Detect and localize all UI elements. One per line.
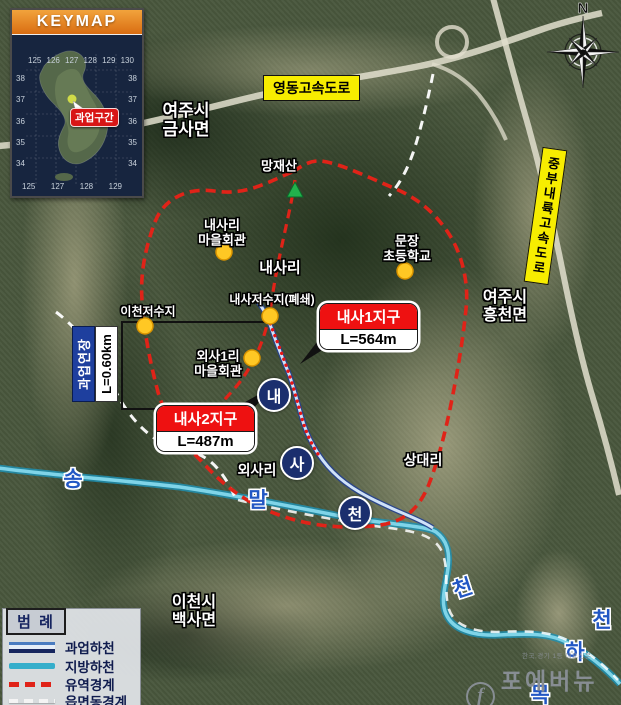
legend-label: 지방하천 xyxy=(65,656,115,676)
project-river-symbol xyxy=(9,642,55,653)
place-line: 마을회관 xyxy=(198,233,246,248)
place-label-yeoju-heungcheon: 여주시 흥천면 xyxy=(483,289,527,325)
munjang-school-marker xyxy=(397,263,413,279)
place-line: 외사1리 xyxy=(194,349,242,364)
keymap-grid-number: 128 xyxy=(80,182,93,191)
place-line: 금사면 xyxy=(163,120,210,139)
district2-name: 내사2지구 xyxy=(157,406,254,432)
place-line: 내사리 xyxy=(198,218,246,233)
keymap-project-section-label: 과업구간 xyxy=(70,108,119,127)
keymap-grid-number: 37 xyxy=(16,95,25,104)
keymap-lat-right: 3837363534 xyxy=(128,74,137,168)
legend-item-project-river: 과업하천 xyxy=(9,640,136,654)
compass-north-label: N xyxy=(578,0,589,17)
place-line: 흥천면 xyxy=(483,307,527,325)
legend-item-watershed-boundary: 유역경계 xyxy=(9,677,136,691)
keymap-map: 125126127128129130 3837363534 3837363534… xyxy=(14,36,140,194)
legend-label: 과업하천 xyxy=(65,637,115,657)
legend-panel: 범 례 과업하천 지방하천 유역경계 읍면동경계 xyxy=(2,608,141,705)
keymap-title: KEYMAP xyxy=(12,10,142,35)
legend-label: 읍면동경계 xyxy=(65,691,127,705)
keymap-panel: KEYMAP 125126127128129130 3837363534 xyxy=(10,8,144,198)
extent-label: 과업연장 xyxy=(72,326,95,402)
place-label-naesa-reservoir: 내사저수지(폐쇄) xyxy=(229,293,314,306)
watermark-name: 포에버뉴스 xyxy=(501,662,621,705)
keymap-grid-number: 34 xyxy=(16,159,25,168)
district2-length: L=487m xyxy=(157,432,254,451)
river-char-cheon-east: 천 xyxy=(592,609,611,633)
keymap-grid-number: 35 xyxy=(16,138,25,147)
keymap-project-dot xyxy=(68,95,77,104)
place-line: 여주시 xyxy=(483,289,527,307)
keymap-grid-number: 127 xyxy=(65,56,78,65)
place-label-icheon-reservoir: 이천저수지 xyxy=(120,305,175,318)
mountain-peak-triangle xyxy=(287,182,303,197)
keymap-grid-number: 130 xyxy=(121,56,134,65)
jeju-island-shape xyxy=(55,173,73,181)
keymap-lat-left: 3837363534 xyxy=(16,74,25,168)
naesa-reservoir-marker xyxy=(262,308,278,324)
yeongdong-expressway-label: 영동고속도로 xyxy=(263,75,360,101)
place-label-mangjaesan: 망재산 xyxy=(261,160,297,175)
keymap-grid-number: 37 xyxy=(128,95,137,104)
place-line: 이천시 xyxy=(172,594,216,612)
place-line: 여주시 xyxy=(163,101,210,120)
place-line: 마을회관 xyxy=(194,364,242,379)
legend-title: 범 례 xyxy=(6,608,66,635)
place-label-naesari: 내사리 xyxy=(259,261,300,278)
keymap-grid-number: 36 xyxy=(128,117,137,126)
township-boundary-line-north xyxy=(389,74,433,196)
keymap-grid-number: 128 xyxy=(84,56,97,65)
keymap-grid-number: 38 xyxy=(16,74,25,83)
keymap-grid-number: 125 xyxy=(22,182,35,191)
district1-name: 내사1지구 xyxy=(320,304,417,330)
place-label-munjang-school: 문장 초등학교 xyxy=(383,234,431,263)
place-label-icheon-baeksa: 이천시 백사면 xyxy=(172,594,216,630)
place-label-oesa1ri-hall: 외사1리 마을회관 xyxy=(194,349,242,378)
keymap-grid-number: 38 xyxy=(128,74,137,83)
keymap-grid-number: 129 xyxy=(102,56,115,65)
keymap-grid-number: 36 xyxy=(16,117,25,126)
local-river-symbol xyxy=(9,663,55,669)
keymap-grid-number: 129 xyxy=(109,182,122,191)
watershed-boundary-symbol xyxy=(9,682,55,687)
keymap-lon-top: 125126127128129130 xyxy=(28,56,134,65)
river-circle-cheon: 천 xyxy=(338,496,372,530)
keymap-grid-number: 35 xyxy=(128,138,137,147)
interchange-loop xyxy=(437,27,467,57)
satellite-map: N 영동고속도로 중부내륙고속도로 여주시 금사면 망재산 내사리 마을회관 내… xyxy=(0,0,621,705)
district1-callout: 내사1지구 L=564m xyxy=(319,303,418,350)
keymap-lon-bottom: 125127128129 xyxy=(22,182,122,191)
jungbu-naeryuk-expressway-road xyxy=(493,0,619,495)
keymap-grid-number: 125 xyxy=(28,56,41,65)
place-label-sangdaeri: 상대리 xyxy=(404,453,443,469)
river-circle-nae: 내 xyxy=(257,378,291,412)
place-label-naesari-hall: 내사리 마을회관 xyxy=(198,218,246,247)
extent-length: L=0.60km xyxy=(95,326,118,402)
place-label-oesari: 외사리 xyxy=(238,463,277,479)
legend-item-township-boundary: 읍면동경계 xyxy=(9,694,136,705)
watermark-tagline: 한국,경기 1등 대표신문 xyxy=(522,650,621,660)
place-line: 백사면 xyxy=(172,612,216,630)
river-char-mal: 말 xyxy=(248,489,267,513)
district1-length: L=564m xyxy=(320,330,417,349)
keymap-grid-number: 34 xyxy=(128,159,137,168)
place-line: 문장 xyxy=(383,234,431,249)
river-char-song: 송 xyxy=(63,468,82,492)
icheon-reservoir-marker xyxy=(137,318,153,334)
district2-callout: 내사2지구 L=487m xyxy=(156,405,255,452)
place-line: 초등학교 xyxy=(383,249,431,264)
place-label-yeoju-geumsa: 여주시 금사면 xyxy=(163,101,210,139)
legend-item-local-river: 지방하천 xyxy=(9,659,136,673)
township-boundary-symbol xyxy=(9,699,55,703)
keymap-grid-number: 126 xyxy=(47,56,60,65)
watermark-logo-icon: f xyxy=(466,682,495,705)
river-circle-sa: 사 xyxy=(280,446,314,480)
interchange-ramp xyxy=(432,64,506,140)
news-watermark: 한국,경기 1등 대표신문 f 포에버뉴스 xyxy=(466,650,621,705)
keymap-grid-number: 127 xyxy=(51,182,64,191)
oesa1ri-hall-marker xyxy=(244,350,260,366)
